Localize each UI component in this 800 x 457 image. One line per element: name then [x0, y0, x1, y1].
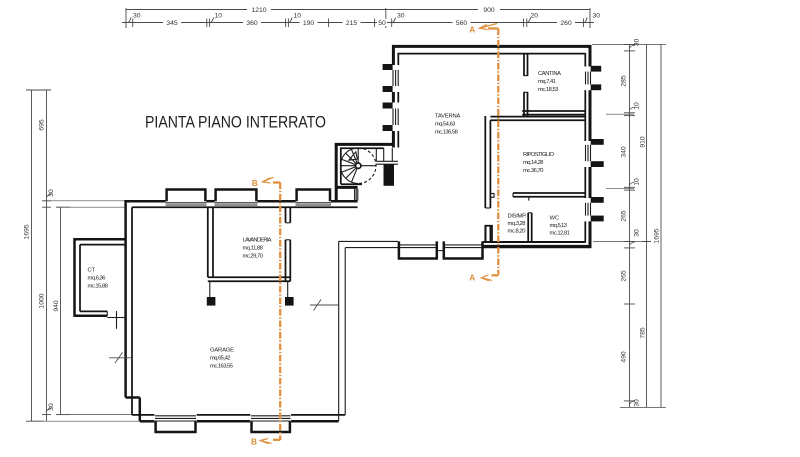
- svg-text:mc.163,55: mc.163,55: [210, 364, 233, 370]
- svg-text:285: 285: [620, 75, 627, 87]
- svg-text:265: 265: [620, 270, 627, 282]
- svg-text:mc.8,20: mc.8,20: [508, 229, 526, 235]
- svg-text:30: 30: [48, 189, 55, 197]
- svg-text:LAVANDERIA: LAVANDERIA: [243, 238, 272, 244]
- svg-text:TAVERNA: TAVERNA: [435, 114, 461, 120]
- svg-text:265: 265: [620, 210, 627, 222]
- svg-text:1000: 1000: [39, 293, 46, 308]
- svg-text:mq.6,36: mq.6,36: [88, 276, 106, 282]
- svg-text:20: 20: [531, 13, 539, 20]
- svg-text:A: A: [469, 25, 475, 35]
- svg-text:260: 260: [560, 20, 572, 27]
- svg-text:785: 785: [640, 327, 647, 339]
- svg-text:30: 30: [634, 399, 641, 407]
- svg-text:PIANTA PIANO INTERRATO: PIANTA PIANO INTERRATO: [145, 114, 326, 132]
- svg-text:10: 10: [294, 13, 302, 20]
- svg-text:910: 910: [640, 136, 647, 148]
- svg-text:940: 940: [53, 300, 60, 312]
- svg-text:mq.7,41: mq.7,41: [538, 79, 556, 85]
- svg-text:RIPOSTIGLIO: RIPOSTIGLIO: [523, 152, 554, 158]
- svg-text:695: 695: [39, 119, 46, 131]
- svg-text:mc.136,58: mc.136,58: [435, 130, 458, 136]
- svg-text:mq.5,13: mq.5,13: [550, 223, 568, 229]
- svg-text:1695: 1695: [654, 228, 661, 243]
- svg-text:GARAGE: GARAGE: [210, 348, 234, 354]
- svg-text:DISIMP.: DISIMP.: [508, 214, 527, 220]
- svg-text:mq.11,88: mq.11,88: [243, 246, 264, 252]
- svg-text:1695: 1695: [24, 224, 31, 239]
- svg-text:mq.54,63: mq.54,63: [435, 122, 456, 128]
- svg-text:360: 360: [246, 20, 258, 27]
- svg-text:490: 490: [620, 351, 627, 363]
- svg-text:190: 190: [303, 20, 315, 27]
- svg-text:30: 30: [634, 229, 641, 237]
- svg-text:mc.15,88: mc.15,88: [88, 284, 109, 290]
- svg-text:mc.18,53: mc.18,53: [538, 87, 559, 93]
- svg-text:mq.65,42: mq.65,42: [210, 356, 231, 362]
- svg-text:340: 340: [620, 146, 627, 158]
- svg-text:50: 50: [378, 20, 386, 27]
- svg-text:mc.29,70: mc.29,70: [243, 254, 264, 260]
- svg-text:345: 345: [166, 20, 178, 27]
- svg-text:mq.14,28: mq.14,28: [523, 160, 544, 166]
- svg-text:mc.36,70: mc.36,70: [523, 168, 544, 174]
- svg-text:30: 30: [593, 13, 601, 20]
- svg-text:CANTINA: CANTINA: [538, 71, 561, 77]
- svg-text:10: 10: [215, 13, 223, 20]
- svg-text:30: 30: [397, 13, 405, 20]
- svg-text:30: 30: [48, 403, 55, 411]
- svg-text:WC: WC: [550, 216, 560, 222]
- svg-text:10: 10: [634, 178, 641, 186]
- svg-text:30: 30: [133, 13, 141, 20]
- svg-text:CT: CT: [88, 268, 96, 274]
- svg-text:30: 30: [634, 39, 641, 47]
- svg-text:B: B: [252, 178, 258, 188]
- svg-text:B: B: [251, 436, 257, 446]
- svg-text:mc.12,81: mc.12,81: [550, 231, 571, 237]
- svg-text:10: 10: [634, 102, 641, 110]
- svg-text:A: A: [469, 272, 475, 282]
- svg-text:900: 900: [483, 7, 495, 14]
- svg-text:1210: 1210: [251, 7, 266, 14]
- svg-text:215: 215: [346, 20, 358, 27]
- svg-text:mq.3,28: mq.3,28: [508, 221, 526, 227]
- svg-text:560: 560: [456, 20, 468, 27]
